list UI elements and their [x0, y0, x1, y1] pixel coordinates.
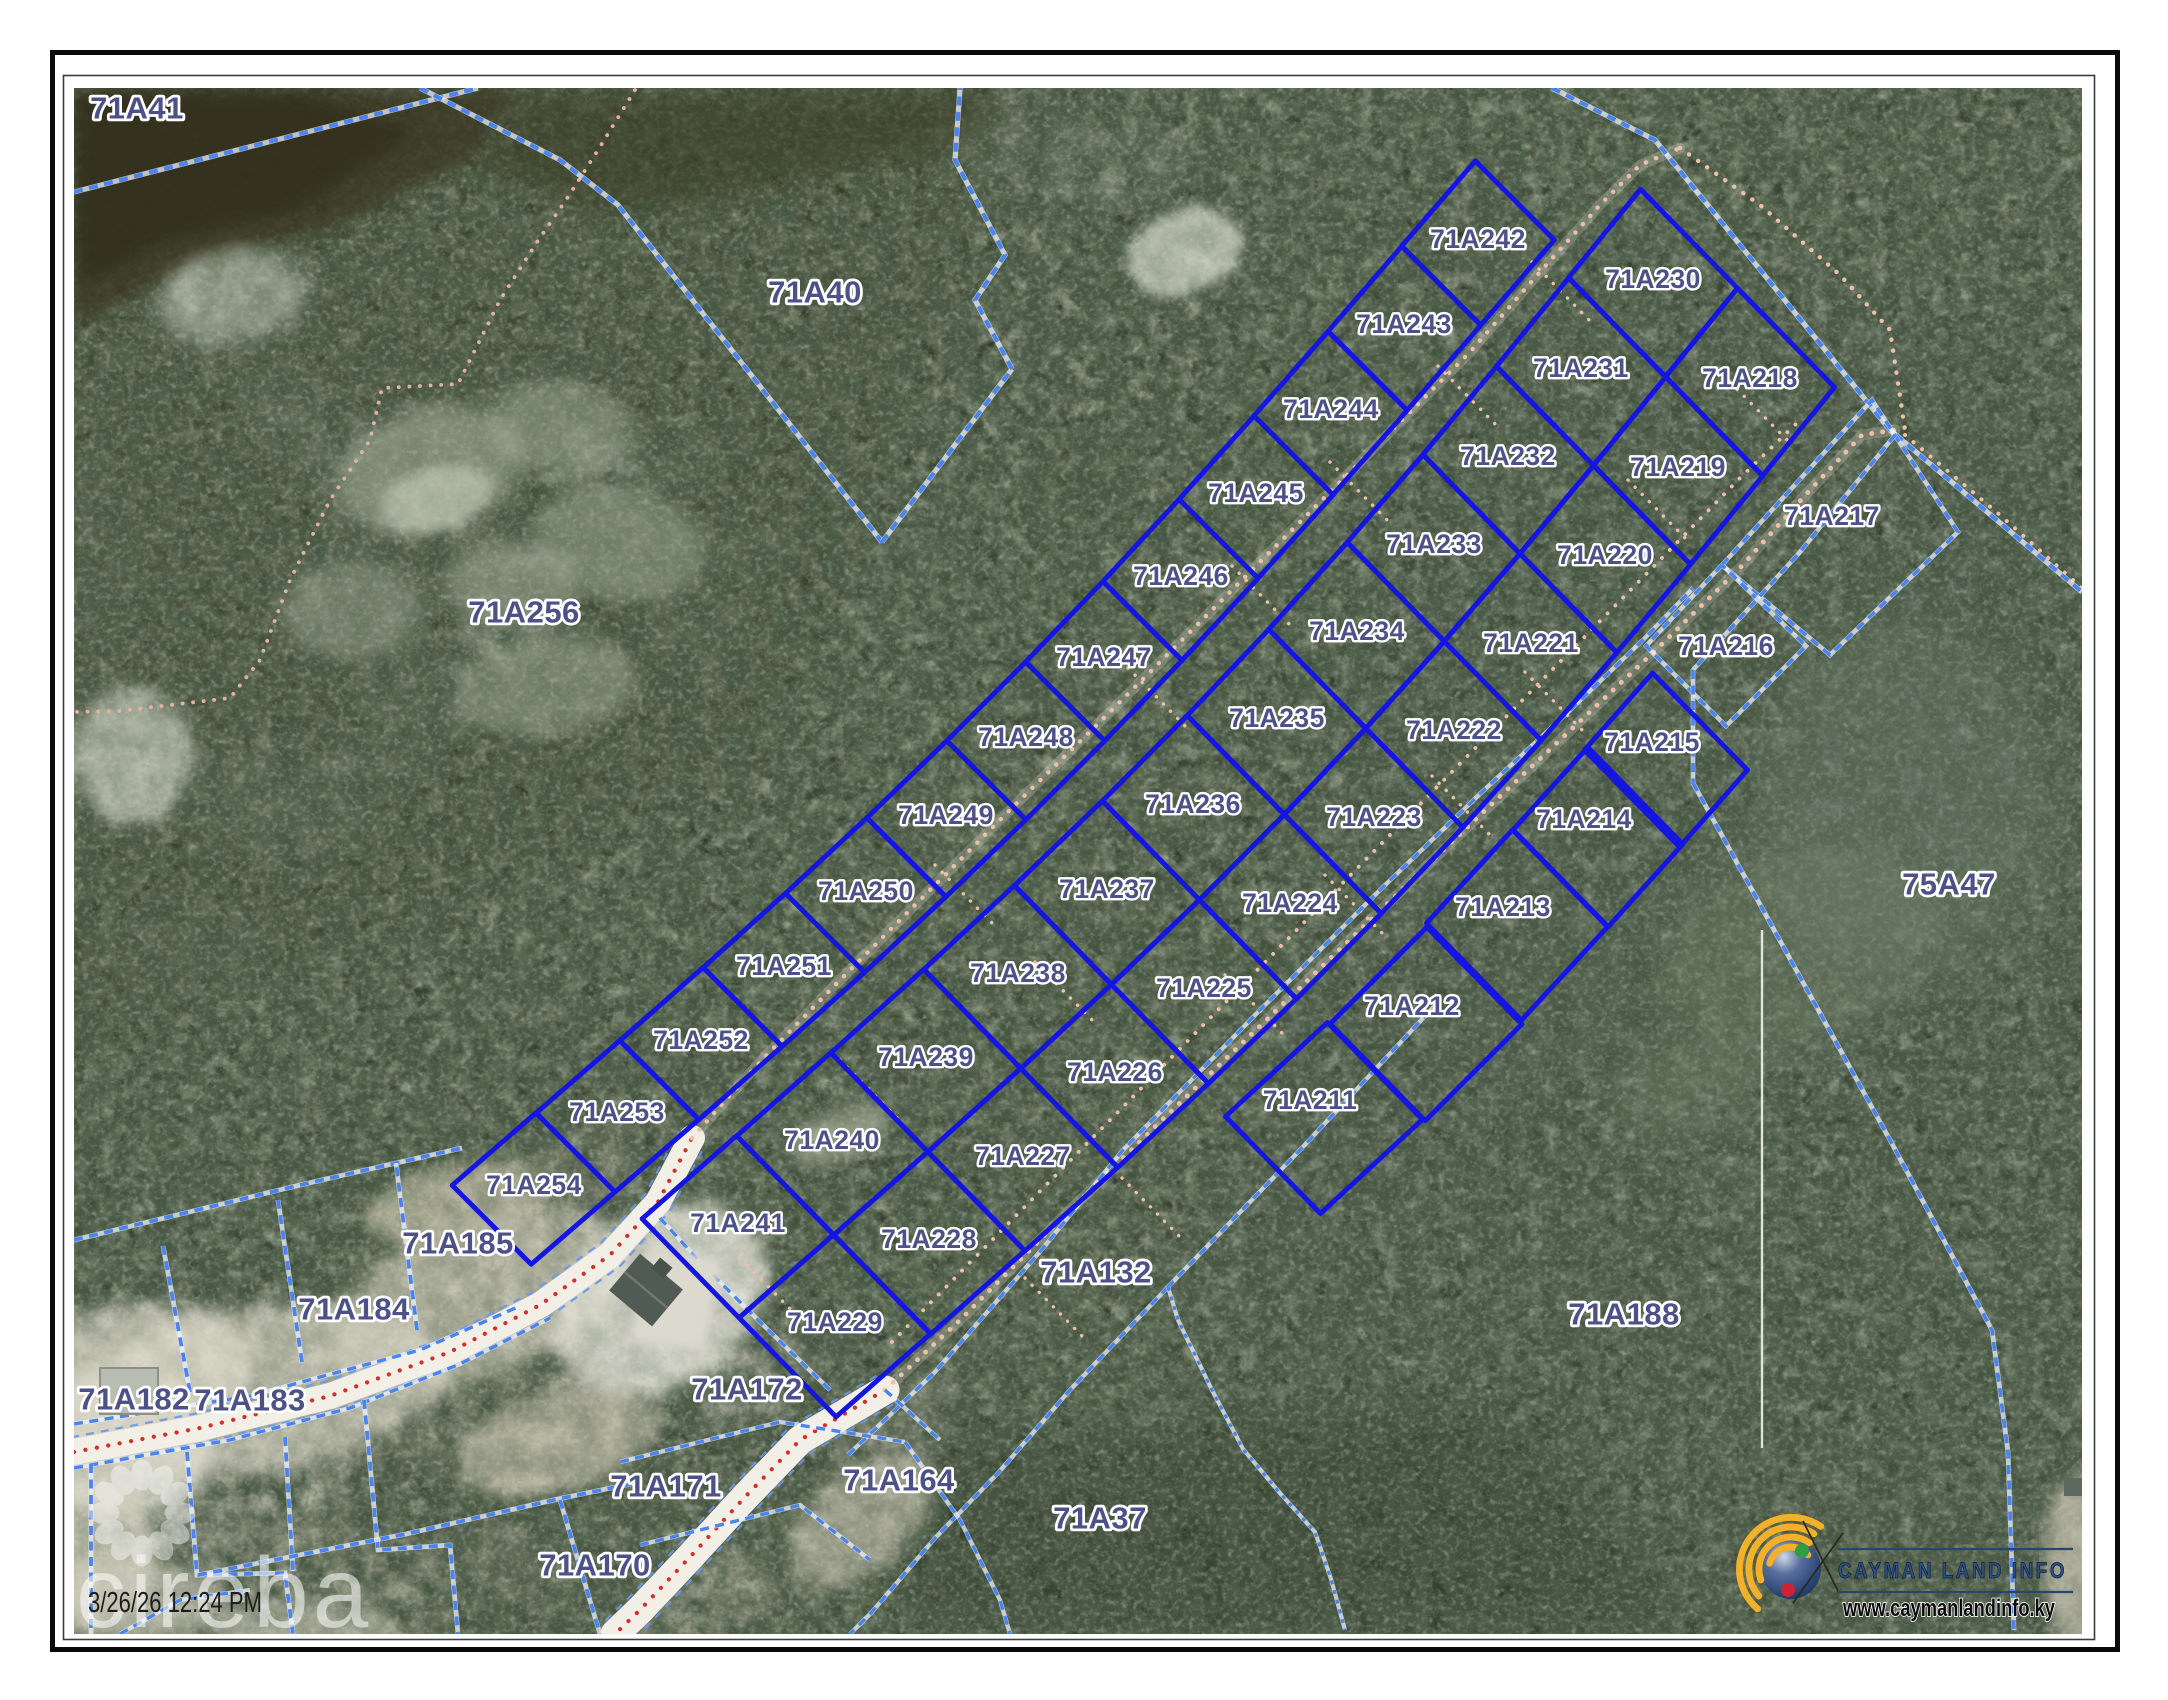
svg-text:71A236: 71A236 [1145, 789, 1241, 819]
svg-text:71A220: 71A220 [1557, 540, 1653, 570]
svg-text:71A164: 71A164 [843, 1463, 955, 1498]
svg-text:71A234: 71A234 [1309, 616, 1405, 646]
svg-text:71A172: 71A172 [691, 1372, 803, 1407]
svg-text:71A214: 71A214 [1536, 804, 1632, 834]
svg-text:71A170: 71A170 [539, 1548, 651, 1583]
svg-text:71A256: 71A256 [468, 595, 580, 630]
svg-text:71A248: 71A248 [978, 722, 1074, 752]
svg-text:71A183: 71A183 [194, 1383, 306, 1418]
svg-text:71A228: 71A228 [881, 1224, 977, 1254]
svg-text:71A226: 71A226 [1067, 1057, 1163, 1087]
svg-text:71A239: 71A239 [878, 1042, 974, 1072]
svg-text:71A218: 71A218 [1702, 363, 1798, 393]
svg-text:71A217: 71A217 [1784, 501, 1880, 531]
svg-text:71A219: 71A219 [1630, 452, 1726, 482]
svg-text:71A184: 71A184 [298, 1292, 410, 1327]
svg-text:71A231: 71A231 [1533, 353, 1629, 383]
svg-text:71A185: 71A185 [402, 1226, 514, 1261]
svg-text:71A213: 71A213 [1455, 892, 1551, 922]
svg-text:71A188: 71A188 [1568, 1297, 1680, 1332]
svg-text:71A41: 71A41 [90, 91, 184, 126]
svg-text:71A212: 71A212 [1364, 991, 1460, 1021]
svg-text:71A254: 71A254 [486, 1170, 582, 1200]
svg-text:71A40: 71A40 [768, 275, 862, 310]
svg-text:71A241: 71A241 [690, 1208, 786, 1238]
svg-text:71A245: 71A245 [1208, 478, 1304, 508]
svg-text:71A244: 71A244 [1283, 394, 1379, 424]
svg-text:71A132: 71A132 [1040, 1255, 1152, 1290]
svg-text:71A211: 71A211 [1263, 1085, 1357, 1115]
svg-text:71A251: 71A251 [736, 951, 832, 981]
svg-text:3/26/26 12:24 PM: 3/26/26 12:24 PM [88, 1587, 262, 1619]
svg-text:71A216: 71A216 [1678, 631, 1774, 661]
svg-text:71A224: 71A224 [1242, 888, 1338, 918]
svg-text:71A246: 71A246 [1133, 561, 1229, 591]
svg-text:71A237: 71A237 [1059, 874, 1155, 904]
svg-text:71A171: 71A171 [610, 1469, 722, 1504]
svg-text:71A249: 71A249 [898, 800, 994, 830]
svg-text:71A235: 71A235 [1229, 703, 1325, 733]
svg-text:71A232: 71A232 [1460, 441, 1556, 471]
svg-text:71A238: 71A238 [970, 958, 1066, 988]
svg-text:71A233: 71A233 [1386, 529, 1482, 559]
svg-text:71A230: 71A230 [1605, 264, 1701, 294]
svg-text:71A37: 71A37 [1053, 1501, 1147, 1536]
svg-text:71A240: 71A240 [784, 1125, 880, 1155]
svg-text:www.caymanlandinfo.ky: www.caymanlandinfo.ky [1842, 1595, 2055, 1622]
svg-text:71A215: 71A215 [1604, 727, 1700, 757]
svg-text:71A222: 71A222 [1406, 715, 1502, 745]
svg-text:71A227: 71A227 [975, 1141, 1071, 1171]
svg-text:71A242: 71A242 [1430, 224, 1526, 254]
svg-text:71A229: 71A229 [787, 1307, 883, 1337]
svg-text:71A247: 71A247 [1056, 642, 1152, 672]
svg-text:71A250: 71A250 [818, 876, 914, 906]
svg-text:71A253: 71A253 [569, 1097, 665, 1127]
svg-text:71A221: 71A221 [1483, 628, 1579, 658]
svg-text:75A47: 75A47 [1902, 867, 1996, 902]
svg-text:71A225: 71A225 [1156, 973, 1252, 1003]
svg-text:71A182: 71A182 [78, 1382, 190, 1417]
svg-text:71A243: 71A243 [1356, 309, 1452, 339]
svg-text:71A223: 71A223 [1326, 802, 1422, 832]
svg-text:CAYMAN LAND INFO: CAYMAN LAND INFO [1838, 1558, 2067, 1583]
svg-text:71A252: 71A252 [653, 1025, 749, 1055]
